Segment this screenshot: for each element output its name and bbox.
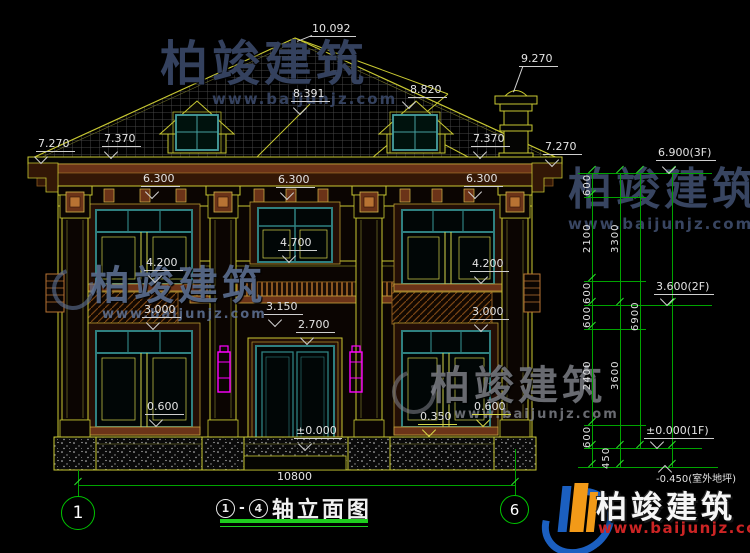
chain-seg-600b: 600 <box>582 282 593 304</box>
chain-seg-600d: 600 <box>582 426 593 448</box>
level-belt-right: 3.000 <box>470 306 509 320</box>
chain-seg-2400: 2400 <box>582 361 593 390</box>
chain-seg-450: 450 <box>601 447 612 469</box>
level-ridge: 10.092 <box>310 23 356 37</box>
elevation-drawing <box>0 0 750 553</box>
title-underline-thin <box>220 526 368 527</box>
grid-bubble-1: 1 <box>61 496 95 530</box>
chain-seg-600c: 600 <box>582 306 593 328</box>
title-underline-thick <box>220 519 368 523</box>
level-door-top: 2.700 <box>296 319 335 333</box>
chain-total-6900: 6900 <box>630 302 641 331</box>
level-sill1-right: 0.600 <box>472 401 511 415</box>
level-sill1-right2: 0.350 <box>418 411 457 425</box>
chain-sub-3300: 3300 <box>610 224 621 253</box>
company-logo: 柏竣建筑 www.baijunjz.com <box>538 478 750 550</box>
title-dash: - <box>239 500 245 516</box>
level-back-ridge: 8.820 <box>408 84 447 98</box>
logo-url-text: www.baijunjz.com <box>598 519 750 537</box>
level-f2top-center: 6.300 <box>276 174 315 188</box>
chain-sub-3600: 3600 <box>610 361 621 390</box>
level-center-window: 4.700 <box>278 237 317 251</box>
level-3f: 6.900(3F) <box>656 147 716 161</box>
level-zero: ±0.000 <box>294 425 342 439</box>
level-2f: 3.600(2F) <box>654 281 714 295</box>
level-f2top-left: 6.300 <box>141 173 180 187</box>
level-belt-left: 3.000 <box>142 304 181 318</box>
chain-seg-2100: 2100 <box>582 224 593 253</box>
level-eave-left-inner: 7.370 <box>102 133 141 147</box>
plinth <box>58 437 532 470</box>
grid-bubble-6: 6 <box>500 495 529 524</box>
grid-bubble-1-label: 1 <box>73 503 84 523</box>
title-axis-bubble-1: 1 <box>216 499 235 518</box>
window-2f-left <box>88 204 200 292</box>
window-1f-left <box>88 323 200 435</box>
overall-width-dim: 10800 <box>277 471 312 483</box>
level-belt-center: 3.150 <box>264 301 303 315</box>
level-back-ridge2: 8.391 <box>291 88 330 102</box>
level-sill2-right: 4.200 <box>470 258 509 272</box>
cad-elevation-canvas: 柏竣建筑 www.baijunjz.com 柏竣建筑 www.baijunjz.… <box>0 0 750 553</box>
level-chimney: 9.270 <box>519 53 558 67</box>
level-sill2-left: 4.200 <box>144 257 183 271</box>
level-eave-right-outer: 7.270 <box>543 141 582 155</box>
title-axis-bubble-4: 4 <box>249 499 268 518</box>
grid-bubble-6-label: 6 <box>510 501 520 519</box>
level-sill1-left: 0.600 <box>145 401 184 415</box>
chain-seg-600a: 600 <box>582 174 593 196</box>
level-eave-right-inner: 7.370 <box>471 133 510 147</box>
level-f2top-right: 6.300 <box>464 173 503 187</box>
